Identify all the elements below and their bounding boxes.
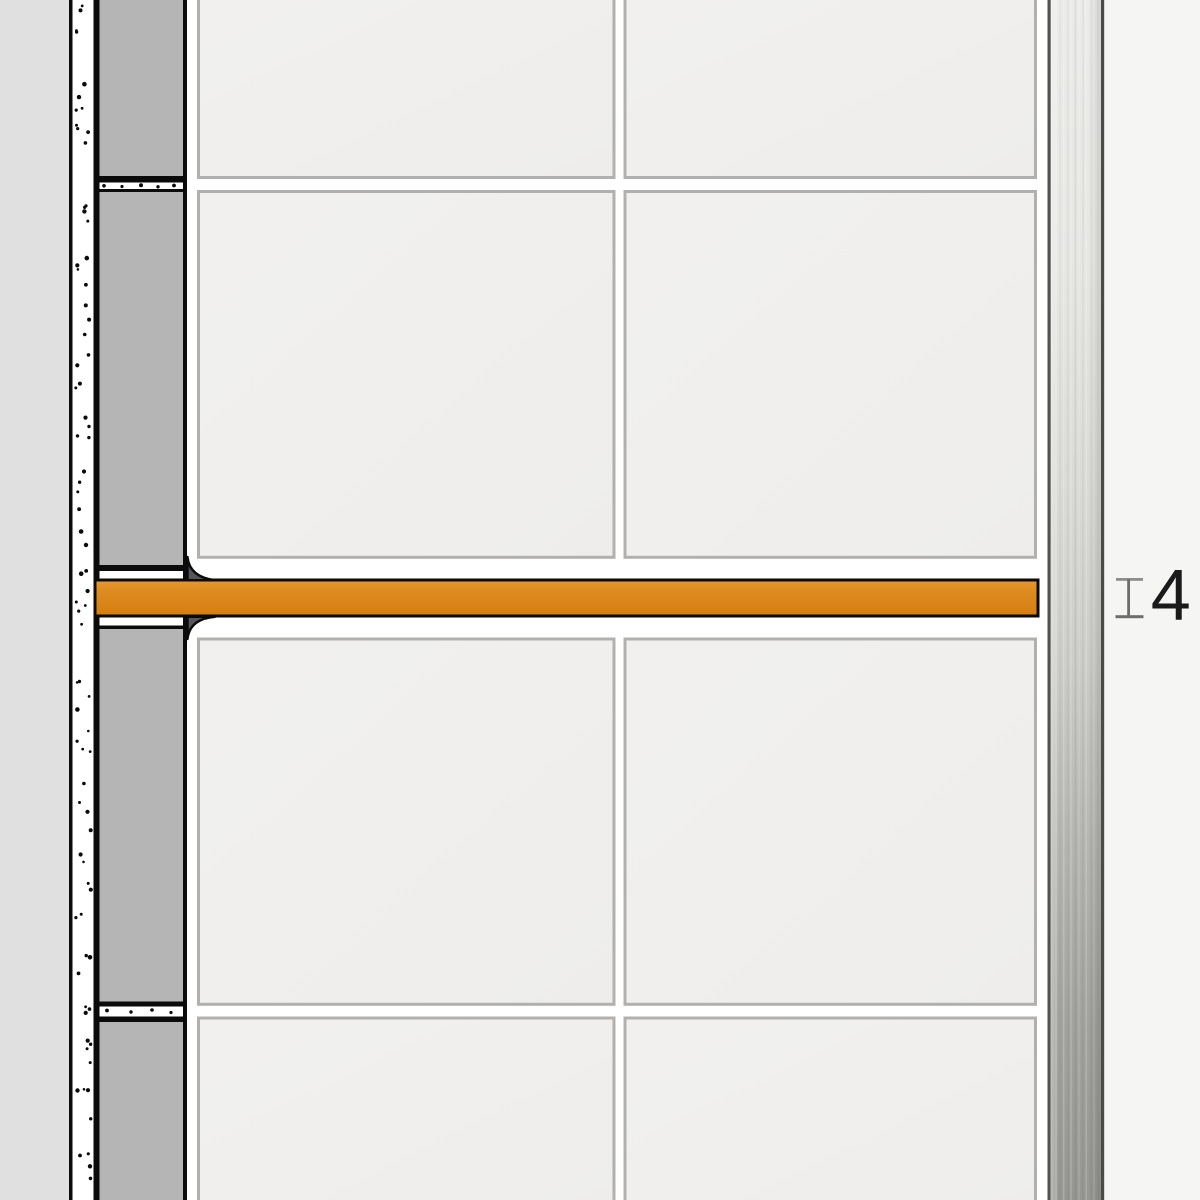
svg-text:4: 4 [1151,556,1191,636]
